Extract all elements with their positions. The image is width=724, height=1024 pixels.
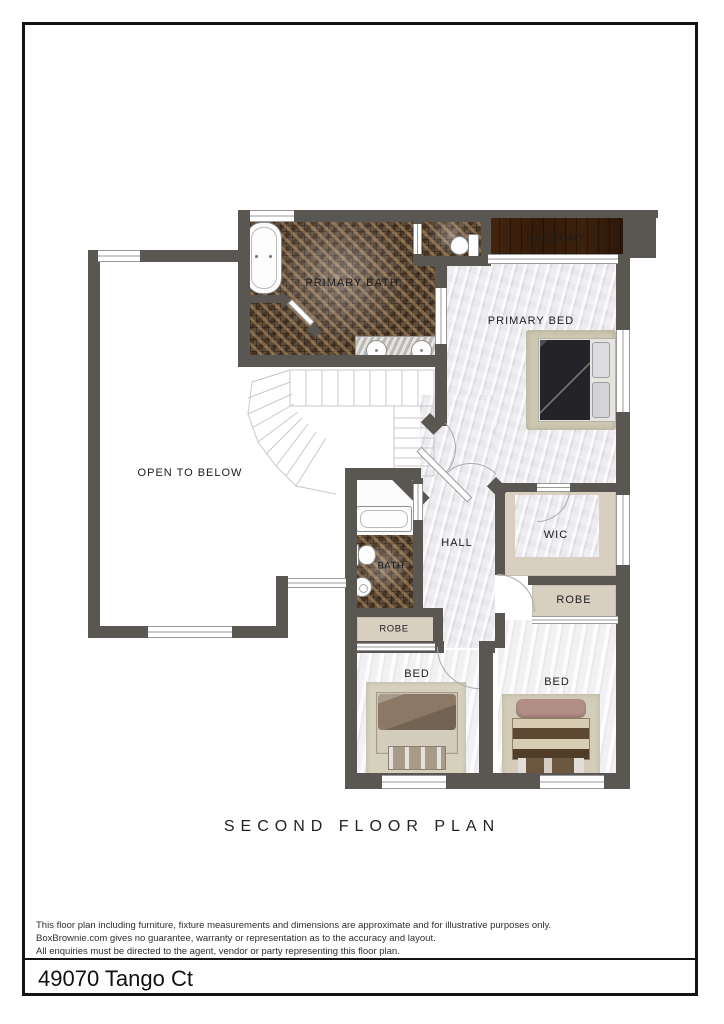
- footer-divider: [25, 958, 696, 960]
- bath-door-opening: [413, 484, 423, 520]
- bed-end-bench: [388, 746, 446, 770]
- disclaimer-line: BoxBrownie.com gives no guarantee, warra…: [36, 933, 551, 946]
- wall-segment: [352, 608, 436, 617]
- room-label-robe-left: ROBE: [379, 624, 408, 635]
- room-label-bath: BATH: [377, 561, 404, 572]
- room-label-bed-left: BED: [404, 668, 430, 680]
- bed-right-furniture: [502, 694, 600, 782]
- balcony-sliding-door: [488, 254, 618, 264]
- window: [148, 626, 232, 638]
- wc-door: [413, 224, 422, 254]
- disclaimer-line: All enquiries must be directed to the ag…: [36, 946, 551, 959]
- window: [382, 775, 446, 789]
- wall-segment: [345, 608, 357, 789]
- plan-title: SECOND FLOOR PLAN: [224, 818, 500, 836]
- room-label-robe-right: ROBE: [556, 594, 591, 606]
- wall-segment: [276, 576, 288, 638]
- wall-segment: [345, 468, 357, 610]
- freestanding-bathtub: [246, 222, 282, 294]
- robe-left-sliding-door: [357, 643, 435, 651]
- bed-left-furniture: [366, 682, 466, 778]
- wall-segment: [495, 613, 505, 648]
- property-address: 49070 Tango Ct: [38, 966, 193, 992]
- wall-segment: [623, 210, 656, 258]
- pillow: [592, 342, 610, 378]
- window: [250, 210, 294, 222]
- window: [98, 250, 140, 262]
- window: [288, 578, 346, 588]
- wall-segment: [479, 641, 493, 777]
- disclaimer-line: This floor plan including furniture, fix…: [36, 920, 551, 933]
- duvet: [512, 718, 590, 760]
- wall-segment: [413, 256, 491, 266]
- duvet: [540, 340, 590, 420]
- room-label-primary-bed: PRIMARY BED: [488, 315, 574, 327]
- disclaimer-text: This floor plan including furniture, fix…: [36, 920, 551, 958]
- tub-faucet-icon: [255, 255, 258, 258]
- window: [616, 495, 630, 565]
- floor-plan-page: PRIMARY BATH BALCONY PRIMARY BED OPEN TO…: [0, 0, 724, 1024]
- toilet-primary: [450, 234, 480, 257]
- window: [616, 330, 630, 412]
- duvet: [378, 694, 456, 730]
- room-label-wic: WIC: [544, 529, 568, 541]
- wall-segment: [88, 626, 150, 638]
- tub-faucet-icon: [269, 255, 272, 258]
- room-label-balcony: BALCONY: [526, 232, 586, 244]
- primary-bed-furniture: [526, 330, 616, 430]
- room-label-bed-right: BED: [544, 676, 570, 688]
- wall-segment: [528, 576, 620, 585]
- room-label-open-to-below: OPEN TO BELOW: [138, 467, 243, 479]
- pillow: [516, 699, 586, 718]
- wall-segment: [88, 250, 100, 638]
- wall-segment: [238, 210, 250, 362]
- bath-pocket-door: [435, 288, 447, 344]
- room-label-hall: HALL: [441, 537, 473, 549]
- pillow: [592, 382, 610, 418]
- bathtub-second: [356, 506, 412, 532]
- room-label-primary-bath: PRIMARY BATH: [305, 277, 398, 289]
- robe-right-sliding-door: [532, 616, 618, 624]
- wic-door-opening: [537, 483, 570, 492]
- wall-segment: [238, 355, 447, 367]
- window: [540, 775, 604, 789]
